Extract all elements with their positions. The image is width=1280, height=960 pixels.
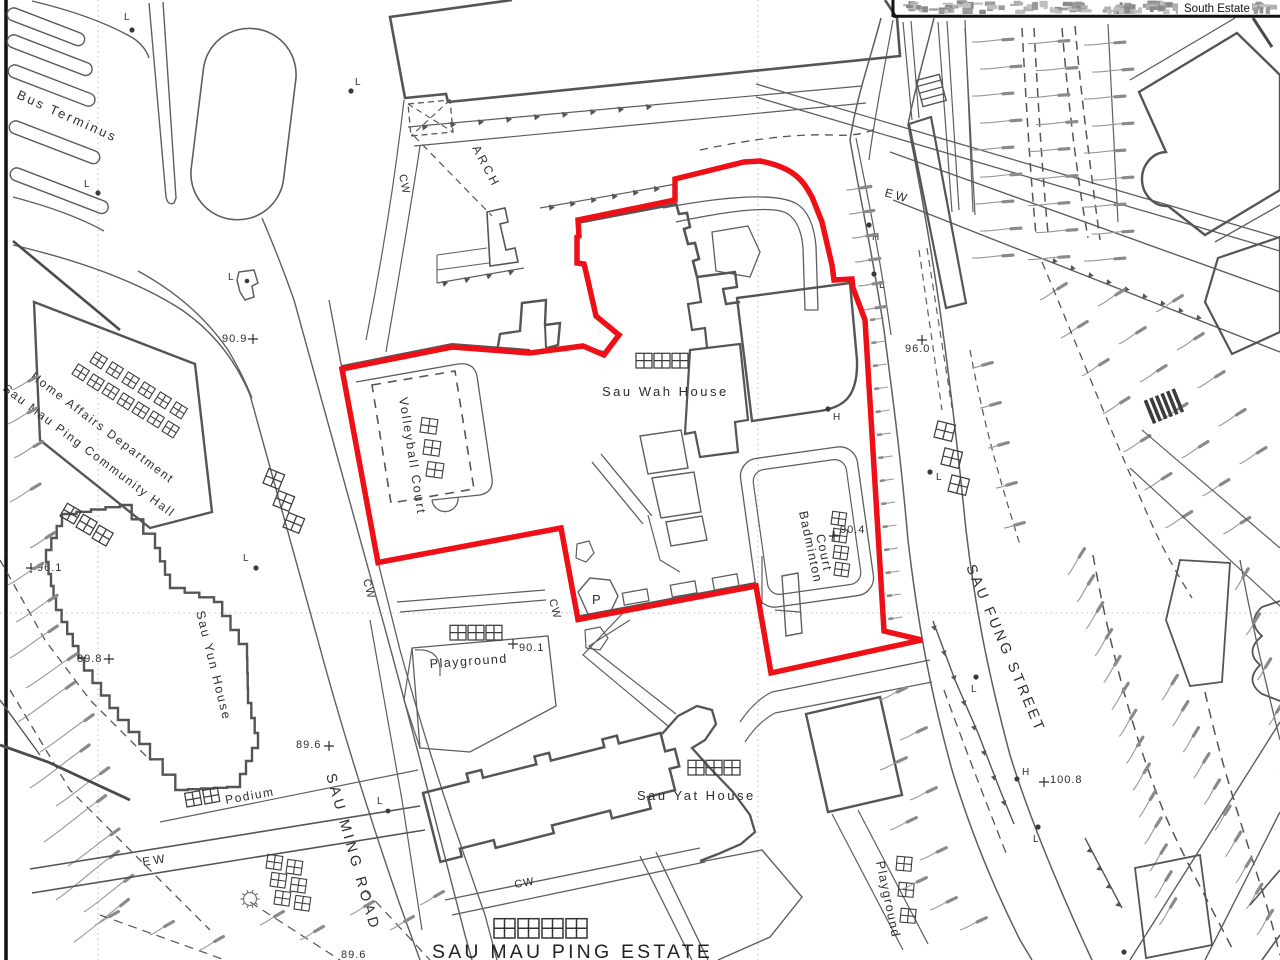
svg-text:Sau Yat House: Sau Yat House [637,788,756,803]
svg-text:L: L [377,796,383,807]
svg-text:L: L [84,179,90,190]
svg-text:L: L [355,77,361,88]
svg-text:96.0: 96.0 [905,343,930,355]
svg-text:P: P [592,592,601,607]
svg-text:L: L [243,553,249,564]
svg-text:SAU MAU PING ESTATE: SAU MAU PING ESTATE [432,941,713,960]
svg-text:H: H [1022,767,1029,778]
svg-text:L: L [124,12,130,23]
svg-text:100.8: 100.8 [1050,774,1083,786]
svg-text:L: L [971,684,977,695]
svg-text:South Estate: South Estate [1184,3,1250,15]
svg-text:90.9: 90.9 [222,333,247,345]
svg-text:90.4: 90.4 [840,524,865,536]
svg-text:L: L [228,272,234,283]
svg-text:Sau Wah House: Sau Wah House [602,384,729,399]
svg-text:L: L [1033,834,1039,845]
svg-text:89.6: 89.6 [341,949,366,960]
svg-text:H: H [833,412,840,423]
svg-text:L: L [936,472,942,483]
svg-text:89.8: 89.8 [77,653,102,665]
svg-text:90.1: 90.1 [519,642,544,654]
svg-text:89.6: 89.6 [296,739,321,751]
